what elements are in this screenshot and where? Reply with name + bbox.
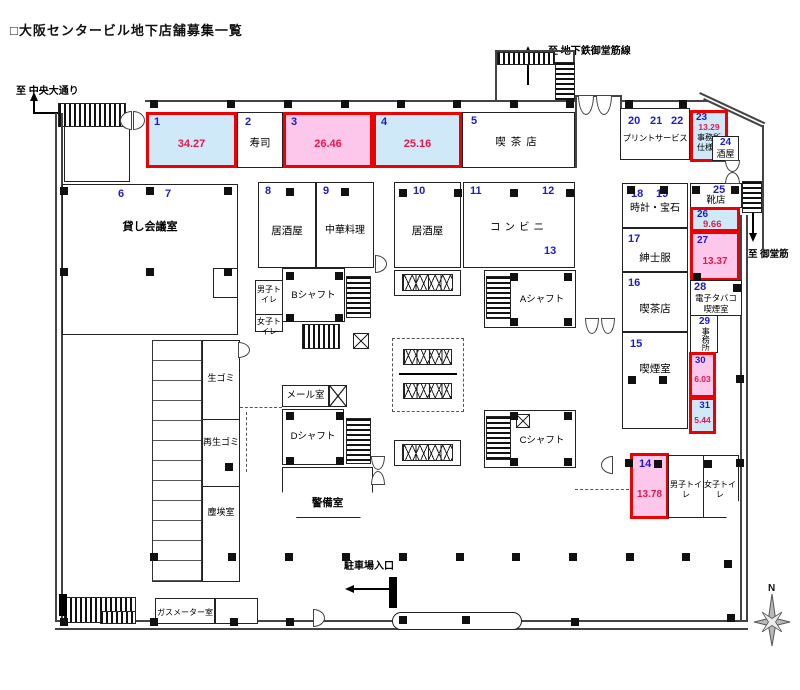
column-marker xyxy=(704,460,712,468)
unit-29-office: 29 事務所 xyxy=(690,315,718,353)
unit-30-vacant: 30 6.03 xyxy=(689,352,716,398)
unit-number: 16 xyxy=(628,278,640,289)
unit-number: 3 xyxy=(291,117,297,128)
unit-number: 21 xyxy=(650,116,662,127)
unit-26-vacant: 26 9.66 xyxy=(690,207,740,232)
unit-number: 15 xyxy=(630,339,642,350)
unit-label: プリントサービス xyxy=(621,134,689,144)
door-symbol xyxy=(596,95,612,115)
stairwell xyxy=(152,340,202,582)
column-marker xyxy=(564,458,572,466)
unit-number: 4 xyxy=(381,117,387,128)
parking-gate-bar xyxy=(389,577,397,608)
dust-room-label: 塵埃室 xyxy=(203,507,239,517)
column-marker xyxy=(510,458,518,466)
door-symbol xyxy=(238,342,250,358)
floor-plan-canvas: □大阪センタービル地下店舗募集一覧 至 中央大通り 至 地下鉄御堂筋線 至 御堂… xyxy=(0,0,800,690)
security-room: 警備室 xyxy=(282,467,373,518)
unit-1-vacant: 1 34.27 xyxy=(146,112,237,168)
column-marker xyxy=(286,457,294,465)
arrow-stem xyxy=(352,588,389,590)
stairs-hatch xyxy=(486,416,511,460)
unit-area: 13.37 xyxy=(693,257,737,267)
door-symbol xyxy=(375,255,387,273)
stairs-hatch xyxy=(742,181,762,213)
gas-meter-room: ガスメーター室 xyxy=(155,598,215,624)
shaft-b-label: Bシャフト xyxy=(283,291,344,302)
column-marker xyxy=(150,100,158,108)
toilet-block: 男子トイレ 女子トイレ xyxy=(255,280,283,332)
column-marker xyxy=(736,459,744,467)
unit-17-menswear: 17 紳士服 xyxy=(622,228,688,272)
column-marker xyxy=(510,273,518,281)
divider xyxy=(399,373,457,375)
unit-number: 13 xyxy=(544,246,556,257)
wall xyxy=(762,125,764,250)
unit-number: 8 xyxy=(265,186,271,197)
unit-label: コンビニ xyxy=(464,221,574,233)
unit-label: 貸し会議室 xyxy=(63,221,237,234)
column-marker xyxy=(224,187,232,195)
dashed-line xyxy=(575,489,629,490)
mail-symbol xyxy=(329,385,347,407)
unit-number: 22 xyxy=(671,116,683,127)
column-marker xyxy=(682,553,690,561)
unit-number: 5 xyxy=(471,116,477,127)
unit-label: 喫茶店 xyxy=(623,303,687,315)
unit-number: 14 xyxy=(639,459,651,470)
column-marker xyxy=(736,375,744,383)
pit-symbol xyxy=(353,333,369,349)
column-marker xyxy=(693,273,701,281)
parking-entrance-label: 駐車場入口 xyxy=(344,557,394,572)
unit-number: 2 xyxy=(245,117,251,128)
unit-area: 25.16 xyxy=(376,139,459,150)
column-marker xyxy=(60,187,68,195)
column-marker xyxy=(679,100,687,108)
column-marker xyxy=(626,553,634,561)
column-marker xyxy=(625,100,633,108)
escalator xyxy=(403,383,452,399)
column-marker xyxy=(285,553,293,561)
unit-number: 28 xyxy=(694,282,706,293)
unit-label: 喫茶店 xyxy=(463,136,574,148)
unit-14-vacant: 14 13.78 xyxy=(630,453,669,519)
column-marker xyxy=(399,189,407,197)
stairs-hatch xyxy=(555,62,575,102)
column-marker xyxy=(341,188,349,196)
arrow-down-icon xyxy=(749,233,757,242)
column-marker xyxy=(286,314,294,322)
unit-area: 9.66 xyxy=(703,220,722,230)
column-marker xyxy=(341,100,349,108)
column-marker xyxy=(342,553,350,561)
dashed-line xyxy=(240,407,282,408)
column-marker xyxy=(727,614,735,622)
gas-meter-room-label: ガスメーター室 xyxy=(156,608,214,617)
unit-label: 紳士服 xyxy=(623,252,687,264)
mens-toilet-label: 男子トイレ xyxy=(256,285,282,305)
wall xyxy=(740,215,742,622)
unit-number: 30 xyxy=(695,356,706,366)
unit-16-cafe: 16 喫茶店 xyxy=(622,272,688,332)
unit-label: 酒屋 xyxy=(713,149,738,159)
unit-label: 電子タバコ喫煙室 xyxy=(691,293,741,314)
unit-area: 6.03 xyxy=(692,375,713,384)
column-marker xyxy=(625,459,633,467)
stairs-hatch xyxy=(100,611,136,624)
unit-24-liquor: 24 酒屋 xyxy=(712,136,739,161)
column-marker xyxy=(733,284,741,292)
unit-label: 居酒屋 xyxy=(259,225,315,237)
escalator xyxy=(403,349,452,365)
column-marker xyxy=(456,553,464,561)
door-symbol xyxy=(601,456,613,474)
divider xyxy=(203,486,239,487)
mail-room: メール室 xyxy=(282,385,329,407)
unit-label: 中華料理 xyxy=(317,225,373,237)
column-marker xyxy=(692,186,700,194)
column-marker xyxy=(569,553,577,561)
stairs-hatch xyxy=(302,324,340,349)
door-symbol xyxy=(725,172,740,184)
column-marker xyxy=(228,553,236,561)
unit-number: 27 xyxy=(697,236,708,246)
unit-number: 31 xyxy=(699,401,710,411)
compass-rose: N xyxy=(748,580,796,650)
parking-island xyxy=(392,612,522,630)
column-marker xyxy=(336,457,344,465)
column-marker xyxy=(566,189,574,197)
unit-number: 7 xyxy=(165,189,171,200)
escalator xyxy=(402,274,453,291)
direction-chuo-odori: 至 中央大通り xyxy=(16,82,79,97)
column-marker xyxy=(659,376,667,384)
column-marker xyxy=(510,100,518,108)
unit-number: 20 xyxy=(628,116,640,127)
column-marker xyxy=(571,618,579,626)
unit-6-7-meeting-room: 6 7 貸し会議室 xyxy=(62,184,238,335)
column-marker xyxy=(286,412,294,420)
column-marker xyxy=(286,618,294,626)
column-marker xyxy=(453,100,461,108)
womens-toilet-label: 女子トイレ xyxy=(703,480,737,500)
wall-pier xyxy=(59,594,67,616)
stairs-hatch xyxy=(346,276,371,318)
security-room-label: 警備室 xyxy=(283,497,372,509)
compass-north-label: N xyxy=(768,583,775,594)
mens-toilet-label: 男子トイレ xyxy=(669,480,703,500)
garbage-block: 生ゴミ 再生ゴミ 塵埃室 xyxy=(202,340,240,582)
unit-area: 26.46 xyxy=(286,139,370,150)
unit-3-vacant: 3 26.46 xyxy=(283,112,373,168)
column-marker xyxy=(462,616,470,624)
column-marker xyxy=(724,560,732,568)
column-marker xyxy=(654,460,662,468)
mail-room-label: メール室 xyxy=(283,391,328,402)
door-symbol xyxy=(371,471,385,485)
column-marker xyxy=(512,553,520,561)
stairs-hatch xyxy=(486,276,511,319)
unit-number: 12 xyxy=(542,186,554,197)
column-marker xyxy=(225,463,233,471)
unit-number: 6 xyxy=(118,189,124,200)
column-marker xyxy=(286,188,294,196)
unit-area: 13.78 xyxy=(633,490,666,500)
column-marker xyxy=(397,100,405,108)
door-symbol xyxy=(133,111,145,130)
column-marker xyxy=(627,186,635,194)
recycled-garbage-label: 再生ゴミ xyxy=(203,437,239,447)
column-marker xyxy=(731,186,739,194)
unit-number: 11 xyxy=(470,186,482,197)
column-marker xyxy=(454,189,462,197)
column-marker xyxy=(227,100,235,108)
door-symbol xyxy=(313,609,325,627)
arrow-left-icon xyxy=(345,585,354,593)
page-title: □大阪センタービル地下店舗募集一覧 xyxy=(10,20,243,39)
unit-number: 24 xyxy=(720,138,731,148)
column-marker xyxy=(564,412,572,420)
unit-number: 9 xyxy=(323,186,329,197)
wall xyxy=(575,95,577,168)
unit-label: 居酒屋 xyxy=(395,225,460,237)
door-symbol xyxy=(585,318,599,334)
column-marker xyxy=(286,272,294,280)
womens-toilet-label: 女子トイレ xyxy=(256,317,282,337)
unit-5-cafe: 5 喫茶店 xyxy=(462,112,575,168)
stairs-hatch xyxy=(58,103,126,127)
direction-midosuji: 至 御堂筋 xyxy=(748,246,789,260)
pit-symbol xyxy=(516,414,530,428)
column-marker xyxy=(399,553,407,561)
column-marker xyxy=(224,268,232,276)
entrance-vestibule xyxy=(64,126,130,182)
column-marker xyxy=(60,618,68,626)
unit-4-vacant: 4 25.16 xyxy=(373,112,462,168)
unit-number: 29 xyxy=(699,317,710,327)
column-marker xyxy=(564,318,572,326)
wall xyxy=(55,113,57,622)
unit-2-sushi: 2 寿司 xyxy=(237,112,283,168)
column-marker xyxy=(150,618,158,626)
column-marker xyxy=(150,553,158,561)
wall xyxy=(620,100,708,102)
escalator xyxy=(402,444,453,461)
shaft-d-label: Dシャフト xyxy=(283,432,343,443)
arrow-stem xyxy=(33,99,35,113)
door-symbol xyxy=(371,456,385,470)
unit-area: 13.29 xyxy=(693,123,725,132)
unit-label: 喫煙室 xyxy=(623,363,687,375)
unit-31-vacant: 31 5.44 xyxy=(689,397,716,434)
door-symbol xyxy=(725,160,740,172)
unit-label: 寿司 xyxy=(238,137,282,149)
divider xyxy=(256,314,282,315)
unit-label: 時計・宝石 xyxy=(623,203,687,215)
column-marker xyxy=(336,412,344,420)
column-marker xyxy=(60,268,68,276)
divider xyxy=(203,419,239,420)
column-marker xyxy=(510,189,518,197)
unit-number: 17 xyxy=(628,234,640,245)
unit-label: 靴店 xyxy=(691,196,741,207)
column-marker xyxy=(399,616,407,624)
raw-garbage-label: 生ゴミ xyxy=(203,373,239,383)
arrow-stem xyxy=(752,210,754,235)
door-symbol xyxy=(601,318,615,334)
unit-area: 5.44 xyxy=(692,416,713,425)
column-marker xyxy=(628,376,636,384)
column-marker xyxy=(564,273,572,281)
unit-label: 事務所 xyxy=(701,327,710,353)
column-marker xyxy=(146,187,154,195)
unit-20-22-print-service: 20 21 22 プリントサービス xyxy=(620,108,690,160)
column-marker xyxy=(335,272,343,280)
column-marker xyxy=(510,412,518,420)
unit-11-12-convenience: 11 12 コンビニ 13 xyxy=(463,182,575,268)
column-marker xyxy=(230,618,238,626)
unit-area: 34.27 xyxy=(149,139,234,150)
wall xyxy=(620,95,622,109)
unit-number: 1 xyxy=(154,117,160,128)
column-marker xyxy=(660,186,668,194)
column-marker xyxy=(146,268,154,276)
stairs-hatch xyxy=(497,52,555,65)
column-marker xyxy=(566,100,574,108)
column-marker xyxy=(284,100,292,108)
column-marker xyxy=(335,314,343,322)
column-marker xyxy=(510,318,518,326)
door-symbol xyxy=(578,95,594,115)
unit-number: 10 xyxy=(413,186,425,197)
dashed-line xyxy=(246,412,247,472)
wall xyxy=(746,215,748,622)
stairs-hatch xyxy=(346,418,371,464)
